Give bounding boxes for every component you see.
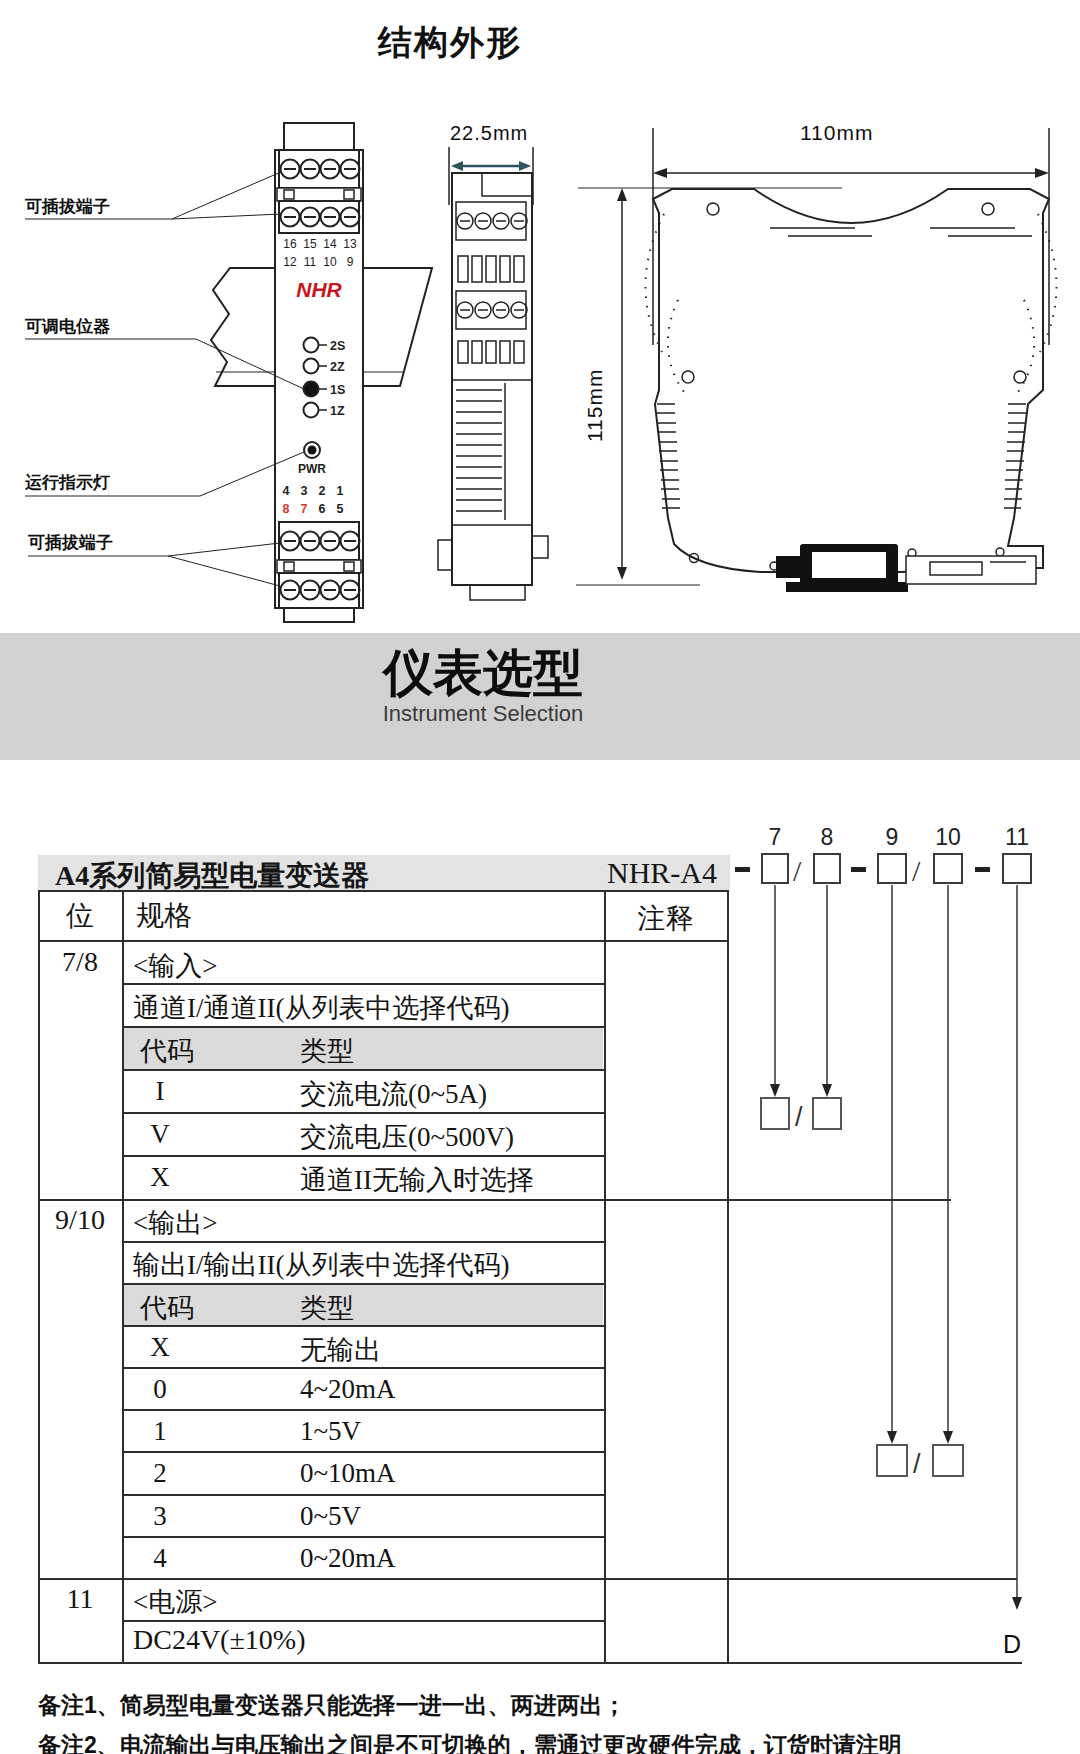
col-header-note: 注释 xyxy=(604,900,727,938)
type-cell: 交流电流(0~5A) xyxy=(300,1076,487,1112)
type-cell: 1~5V xyxy=(300,1416,361,1447)
code-cell: X xyxy=(142,1162,178,1193)
profile-view: 110mm xyxy=(645,121,1056,592)
code-dash xyxy=(851,867,866,872)
terminal-num-red: 7 xyxy=(301,502,308,516)
code-slash: / xyxy=(913,1449,921,1479)
selection-section-header: 仪表选型 Instrument Selection xyxy=(0,633,1080,760)
code-cell: 1 xyxy=(142,1416,178,1447)
code-pos-9: 9 xyxy=(877,824,907,851)
front-view: 16 15 14 13 12 11 10 9 NHR xyxy=(275,123,363,622)
selection-section-subtitle: Instrument Selection xyxy=(0,701,1023,727)
code-cell: X xyxy=(142,1332,178,1363)
code-box-9 xyxy=(877,853,907,884)
table-row-border xyxy=(123,1283,604,1285)
table-row-border xyxy=(123,1620,604,1622)
datasheet-page: 结构外形 xyxy=(0,0,1080,1754)
row-head-power: <电源> xyxy=(133,1584,217,1620)
col-header-spec: 规格 xyxy=(136,897,192,935)
code-cell: 2 xyxy=(142,1458,178,1489)
callout-indicator: 运行指示灯 xyxy=(24,473,110,492)
code-pos-11: 11 xyxy=(1002,824,1032,851)
callout-potentiometer: 可调电位器 xyxy=(24,317,110,336)
col-header-pos: 位 xyxy=(38,897,122,935)
row-head-input: <输入> xyxy=(133,948,217,984)
table-border xyxy=(38,1199,951,1201)
type-cell: 无输出 xyxy=(300,1332,381,1368)
table-border xyxy=(38,940,729,942)
code-box-7 xyxy=(761,853,789,884)
terminal-num: 9 xyxy=(347,255,354,269)
output-code-box-1 xyxy=(877,1445,907,1476)
row-desc-input: 通道I/通道II(从列表中选择代码) xyxy=(133,990,509,1026)
type-cell: 通道II无输入时选择 xyxy=(300,1162,534,1198)
row-desc-power: DC24V(±10%) xyxy=(133,1624,305,1656)
type-cell: 4~20mA xyxy=(300,1374,396,1405)
code-box-10 xyxy=(933,853,963,884)
pot-label: 2S xyxy=(330,339,345,353)
terminal-num: 16 xyxy=(283,237,297,251)
code-cell: 4 xyxy=(142,1543,178,1574)
terminal-num: 12 xyxy=(283,255,297,269)
terminal-num: 6 xyxy=(319,502,326,516)
type-cell: 0~5V xyxy=(300,1501,361,1532)
dim-height-label: 115mm xyxy=(583,369,606,442)
code-dash xyxy=(735,867,750,872)
table-row-border xyxy=(123,1451,604,1453)
dim-width-front: 110mm xyxy=(800,121,873,144)
code-cell: 3 xyxy=(142,1501,178,1532)
code-slash: / xyxy=(795,1102,803,1132)
model-prefix: NHR-A4 xyxy=(607,856,717,890)
selection-section-title: 仪表选型 xyxy=(0,647,1023,699)
row-pos-78: 7/8 xyxy=(38,946,122,978)
default-power-code: D xyxy=(1003,1630,1021,1658)
row-pos-11: 11 xyxy=(38,1583,122,1615)
code-slash: / xyxy=(912,854,920,888)
note-1: 备注1、简易型电量变送器只能选择一进一出、两进两出； xyxy=(38,1690,626,1721)
terminal-num: 11 xyxy=(304,255,317,269)
code-slash: / xyxy=(793,854,801,888)
table-row-border xyxy=(123,1409,604,1411)
table-row-border xyxy=(123,1536,604,1538)
code-header-input: 代码 xyxy=(140,1033,194,1069)
code-pos-8: 8 xyxy=(812,824,842,851)
row-pos-910: 9/10 xyxy=(38,1204,122,1236)
table-row-border xyxy=(123,1494,604,1496)
terminal-num: 3 xyxy=(301,484,308,498)
terminal-num: 2 xyxy=(319,484,326,498)
table-border xyxy=(38,1578,1017,1580)
row-desc-output: 输出I/输出II(从列表中选择代码) xyxy=(133,1247,509,1283)
pot-label: 2Z xyxy=(330,360,345,374)
table-border xyxy=(38,1662,1022,1664)
callout-terminal-top: 可插拔端子 xyxy=(24,197,110,216)
output-code-box-2 xyxy=(933,1445,963,1476)
code-type-header-bar-output xyxy=(123,1284,603,1325)
type-header-output: 类型 xyxy=(300,1290,354,1326)
note-2: 备注2、电流输出与电压输出之间是不可切换的，需通过更改硬件完成，订货时请注明 xyxy=(38,1730,902,1754)
terminal-num: 4 xyxy=(283,484,290,498)
pot-label: 1S xyxy=(330,383,345,397)
type-cell: 交流电压(0~500V) xyxy=(300,1119,514,1155)
code-cell: 0 xyxy=(142,1374,178,1405)
row-head-output: <输出> xyxy=(133,1205,217,1241)
code-cell: I xyxy=(142,1076,178,1107)
code-box-8 xyxy=(813,853,841,884)
table-row-border xyxy=(123,1155,604,1157)
terminal-num: 13 xyxy=(343,237,357,251)
code-dash xyxy=(975,867,990,872)
code-header-output: 代码 xyxy=(140,1290,194,1326)
terminal-num: 1 xyxy=(337,484,344,498)
type-cell: 0~10mA xyxy=(300,1458,396,1489)
code-type-header-bar-input xyxy=(123,1027,603,1069)
terminal-num-red: 8 xyxy=(283,502,290,516)
structure-drawings: 16 15 14 13 12 11 10 9 NHR xyxy=(0,0,1080,640)
callout-terminal-bottom: 可插拔端子 xyxy=(27,533,113,552)
terminal-num: 15 xyxy=(303,237,317,251)
terminal-num: 10 xyxy=(323,255,337,269)
nhr-logo: NHR xyxy=(296,278,342,301)
type-header-input: 类型 xyxy=(300,1033,354,1069)
code-cell: V xyxy=(142,1119,178,1150)
led-label: PWR xyxy=(298,462,326,476)
table-border xyxy=(122,890,124,1664)
table-border xyxy=(604,890,606,1664)
table-border xyxy=(38,890,40,1664)
terminal-num: 14 xyxy=(323,237,337,251)
table-row-border xyxy=(123,1026,604,1028)
code-box-11 xyxy=(1002,853,1032,884)
table-row-border xyxy=(123,1325,604,1327)
table-border xyxy=(38,890,729,892)
pot-label: 1Z xyxy=(330,404,345,418)
code-pos-10: 10 xyxy=(933,824,963,851)
input-code-box-1 xyxy=(761,1098,789,1129)
code-pos-7: 7 xyxy=(760,824,790,851)
table-border xyxy=(727,890,729,1664)
terminal-num: 5 xyxy=(337,502,344,516)
dim-width-side: 22.5mm xyxy=(450,122,528,144)
side-view: 22.5mm xyxy=(438,122,548,600)
type-cell: 0~20mA xyxy=(300,1543,396,1574)
table-row-border xyxy=(123,1241,604,1243)
table-row-border xyxy=(123,1112,604,1114)
arrowheads xyxy=(770,1084,1022,1610)
table-row-border xyxy=(123,1069,604,1071)
input-code-box-2 xyxy=(813,1098,841,1129)
